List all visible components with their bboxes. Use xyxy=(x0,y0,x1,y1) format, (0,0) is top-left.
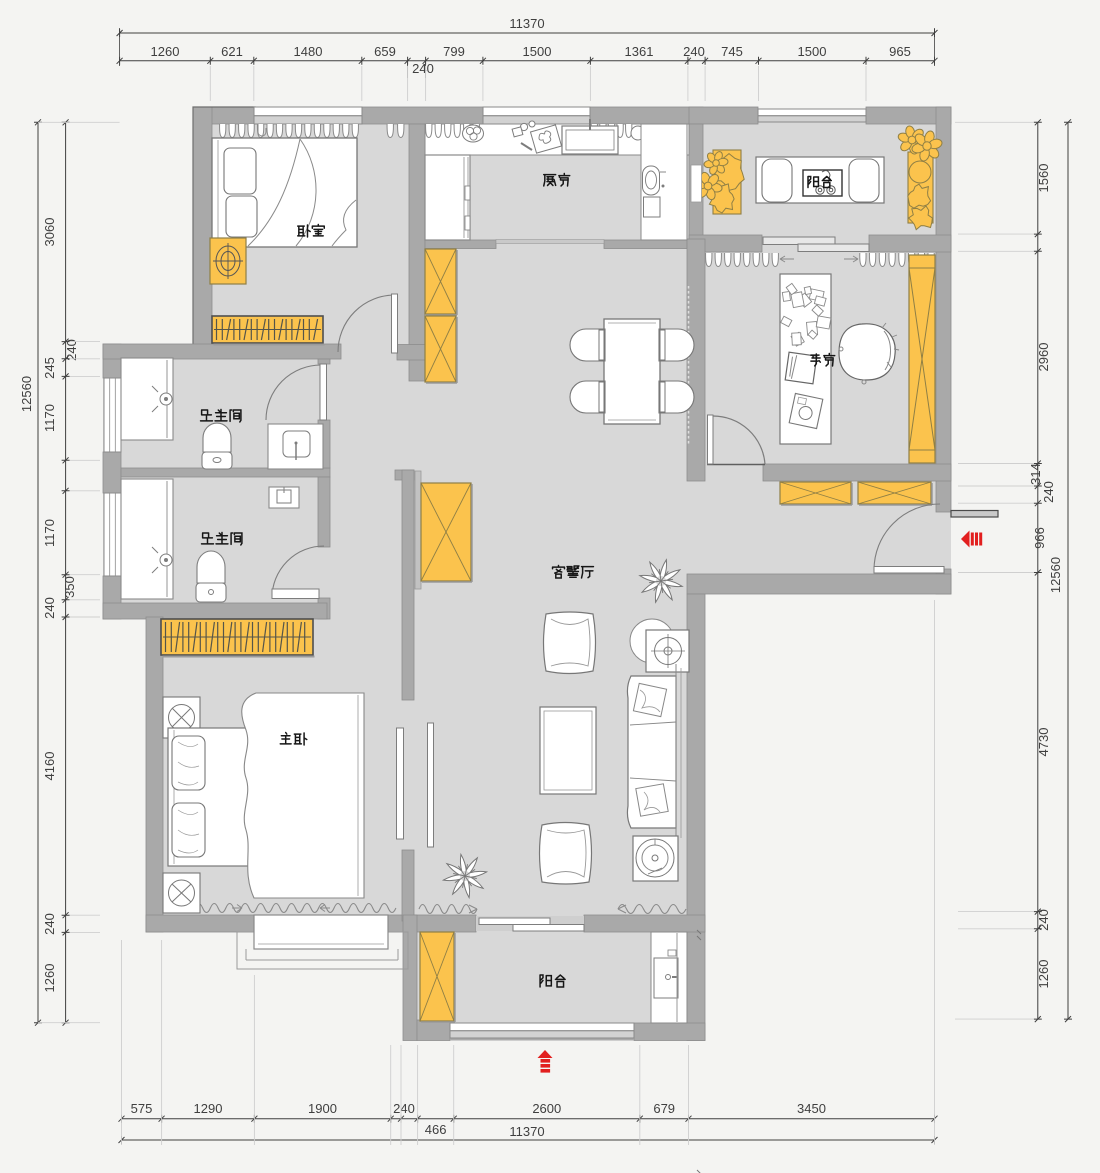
svg-text:466: 466 xyxy=(425,1122,447,1137)
svg-text:966: 966 xyxy=(1032,527,1047,549)
svg-text:1560: 1560 xyxy=(1036,164,1051,193)
svg-text:245: 245 xyxy=(42,357,57,379)
svg-text:659: 659 xyxy=(374,44,396,59)
svg-text:799: 799 xyxy=(443,44,465,59)
svg-text:240: 240 xyxy=(42,597,57,619)
svg-text:1260: 1260 xyxy=(1036,960,1051,989)
svg-text:1260: 1260 xyxy=(42,964,57,993)
svg-text:240: 240 xyxy=(412,61,434,76)
svg-text:12560: 12560 xyxy=(1048,557,1063,593)
svg-text:3060: 3060 xyxy=(42,218,57,247)
svg-text:575: 575 xyxy=(131,1101,153,1116)
svg-text:1361: 1361 xyxy=(625,44,654,59)
svg-text:621: 621 xyxy=(221,44,243,59)
svg-text:1900: 1900 xyxy=(308,1101,337,1116)
svg-text:1170: 1170 xyxy=(42,404,57,432)
svg-text:240: 240 xyxy=(393,1101,415,1116)
svg-text:240: 240 xyxy=(1041,481,1056,503)
svg-text:12560: 12560 xyxy=(19,376,34,412)
svg-text:1170: 1170 xyxy=(42,519,57,547)
svg-text:4160: 4160 xyxy=(42,752,57,781)
svg-text:11370: 11370 xyxy=(509,16,544,31)
svg-text:2600: 2600 xyxy=(532,1101,561,1116)
svg-text:240: 240 xyxy=(683,44,705,59)
svg-text:745: 745 xyxy=(721,44,743,59)
svg-text:679: 679 xyxy=(653,1101,675,1116)
svg-text:240: 240 xyxy=(64,339,79,361)
svg-text:1480: 1480 xyxy=(294,44,323,59)
svg-text:1290: 1290 xyxy=(194,1101,223,1116)
svg-text:1500: 1500 xyxy=(523,44,552,59)
svg-text:4730: 4730 xyxy=(1036,728,1051,757)
svg-text:2960: 2960 xyxy=(1036,343,1051,372)
svg-text:240: 240 xyxy=(42,913,57,935)
svg-text:3450: 3450 xyxy=(797,1101,826,1116)
svg-text:240: 240 xyxy=(1036,909,1051,931)
svg-text:1260: 1260 xyxy=(151,44,180,59)
svg-text:965: 965 xyxy=(889,44,911,59)
svg-text:1500: 1500 xyxy=(798,44,827,59)
svg-text:11370: 11370 xyxy=(509,1124,544,1139)
svg-text:350: 350 xyxy=(62,576,77,598)
